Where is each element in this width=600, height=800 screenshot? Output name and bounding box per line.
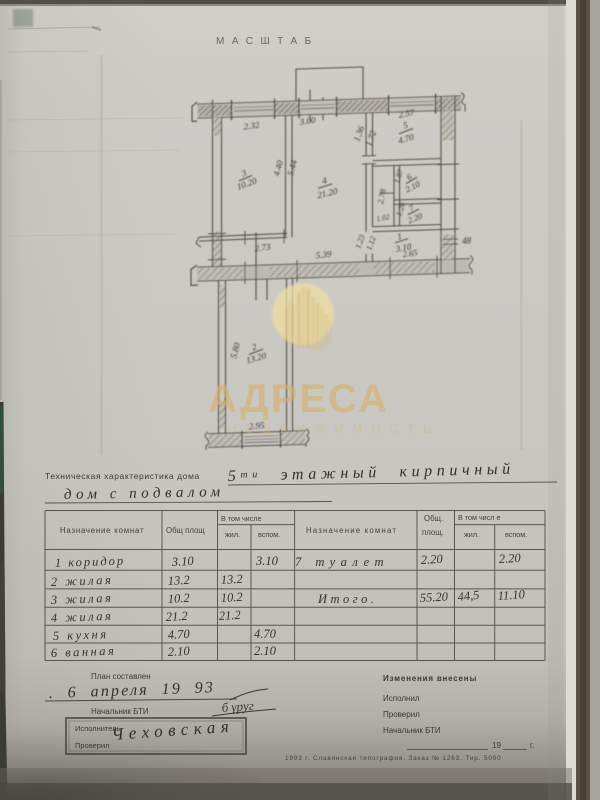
- svg-text:5 кухня: 5 кухня: [53, 627, 109, 643]
- svg-text:Исполнил: Исполнил: [383, 694, 420, 703]
- svg-text:1993 г. Славянская типографи: 1993 г. Славянская типография. Заказ № 1…: [285, 755, 502, 762]
- svg-text:21.2: 21.2: [218, 608, 241, 623]
- svg-text:2.10: 2.10: [167, 644, 190, 659]
- svg-text:13.2: 13.2: [220, 572, 243, 587]
- svg-text:жил.: жил.: [225, 530, 240, 539]
- svg-text:10.2: 10.2: [167, 591, 190, 606]
- svg-text:План составлен: План составлен: [91, 672, 151, 681]
- svg-text:3.10: 3.10: [170, 554, 194, 569]
- svg-text:1 коридор: 1 коридор: [55, 554, 126, 570]
- svg-text:19: 19: [492, 741, 501, 750]
- svg-text:вспом.: вспом.: [258, 530, 280, 539]
- svg-text:АДРЕСА: АДРЕСА: [208, 377, 389, 421]
- svg-text:4.70: 4.70: [254, 627, 277, 641]
- svg-text:НЕДВИЖИМОСТЬ: НЕДВИЖИМОСТЬ: [228, 422, 440, 436]
- svg-text:Проверил: Проверил: [75, 741, 110, 750]
- svg-text:г.: г.: [530, 741, 534, 750]
- svg-text:2.20: 2.20: [420, 552, 443, 567]
- svg-text:7 туалет: 7 туалет: [295, 555, 389, 569]
- svg-text:11.10: 11.10: [497, 587, 526, 603]
- svg-text:В том числе: В том числе: [221, 514, 261, 523]
- svg-text:2 жилая: 2 жилая: [51, 573, 114, 589]
- svg-text:Проверил: Проверил: [383, 710, 420, 719]
- svg-text:2.10: 2.10: [254, 644, 277, 658]
- svg-text:48: 48: [462, 236, 471, 246]
- svg-text:Начальник БТИ: Начальник БТИ: [383, 726, 441, 735]
- svg-text:10.2: 10.2: [220, 590, 243, 605]
- svg-text:2.65: 2.65: [402, 247, 418, 259]
- svg-text:Назначение комнат: Назначение комнат: [306, 526, 397, 535]
- svg-text:В том числ е: В том числ е: [458, 513, 500, 522]
- svg-text:Итого.: Итого.: [317, 592, 378, 606]
- svg-text:4.70: 4.70: [167, 627, 190, 642]
- svg-text:Общ площ: Общ площ: [166, 526, 205, 535]
- svg-text:площ.: площ.: [422, 528, 444, 537]
- svg-text:вспом.: вспом.: [505, 530, 527, 539]
- svg-text:Назначение комнат: Назначение комнат: [60, 526, 144, 535]
- svg-text:5.39: 5.39: [315, 249, 332, 261]
- svg-text:Техническая характеристика д: Техническая характеристика дома: [45, 471, 200, 481]
- svg-text:13.2: 13.2: [167, 573, 190, 588]
- svg-text:дом с подвалом: дом с подвалом: [64, 484, 225, 503]
- svg-text:МАСШТАБ: МАСШТАБ: [216, 36, 319, 47]
- svg-text:2.73: 2.73: [254, 241, 271, 253]
- svg-text:21.2: 21.2: [165, 609, 188, 624]
- svg-text:55.20: 55.20: [419, 590, 449, 605]
- svg-text:жил.: жил.: [464, 530, 479, 539]
- svg-text:Изменения внесены: Изменения внесены: [383, 674, 477, 683]
- svg-text:Общ.: Общ.: [424, 514, 443, 523]
- svg-text:2.20: 2.20: [498, 551, 521, 566]
- svg-text:Начальник БТИ: Начальник БТИ: [91, 707, 149, 716]
- svg-text:6 ванная: 6 ванная: [51, 644, 117, 660]
- svg-text:3.10: 3.10: [255, 554, 279, 568]
- svg-text:3 жилая: 3 жилая: [50, 591, 114, 607]
- svg-text:4 жилая: 4 жилая: [51, 609, 114, 625]
- svg-text:44,5: 44,5: [457, 588, 480, 604]
